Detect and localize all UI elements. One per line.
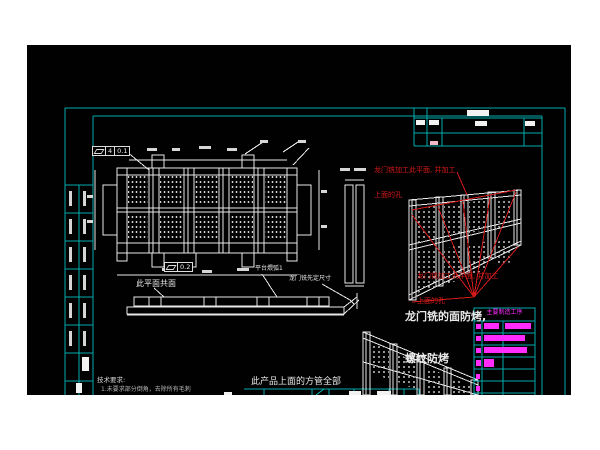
bake-protection-note: 龙门铣的面防烤, 螺纹防烤	[405, 282, 486, 394]
tube-note-line1: 此产品上面的方管全部	[251, 376, 341, 389]
flatness-symbol	[93, 147, 105, 155]
red-note-bottom-line1: 龙门铣加工此平面, 并加工	[417, 272, 498, 280]
fcf1-value: 4	[105, 147, 114, 155]
red-note-top-line1: 龙门铣加工此平面, 并加工	[374, 166, 455, 174]
bake-note-line2: 螺纹防烤	[405, 352, 486, 366]
coplanar-label: 此平面共面	[136, 279, 176, 289]
square-tube-note: 此产品上面的方管全部 为150*150*10.0方管	[251, 350, 341, 395]
tech-requirements-title: 技术要求:	[97, 377, 125, 385]
side-view	[122, 260, 367, 325]
page: 4 0.1 0.2 此平面共面 平台煨弧1 龙门铣先定尺寸 龙门铣加工此平面, …	[0, 0, 600, 450]
fcf2-tolerance: 0.2	[177, 263, 192, 271]
flatness-tolerance-frame-1: 4 0.1	[92, 146, 130, 156]
section-view	[332, 160, 377, 290]
flatness-symbol	[165, 263, 177, 271]
process-table-title: 主要制造工序	[474, 309, 535, 316]
gantry-size-label: 龙门铣先定尺寸	[289, 275, 331, 282]
fcf1-tolerance: 0.1	[114, 147, 129, 155]
cad-viewport: 4 0.1 0.2 此平面共面 平台煨弧1 龙门铣先定尺寸 龙门铣加工此平面, …	[27, 45, 571, 395]
platform-arc-label: 平台煨弧1	[255, 265, 283, 272]
red-note-top-line2: 上面的孔	[374, 191, 455, 199]
tech-requirements-line: 1.未要求部分倒角，去除所有毛刺	[101, 386, 191, 393]
red-machining-note-top: 龙门铣加工此平面, 并加工 上面的孔	[374, 149, 455, 216]
flatness-tolerance-frame-2: 0.2	[164, 262, 193, 272]
